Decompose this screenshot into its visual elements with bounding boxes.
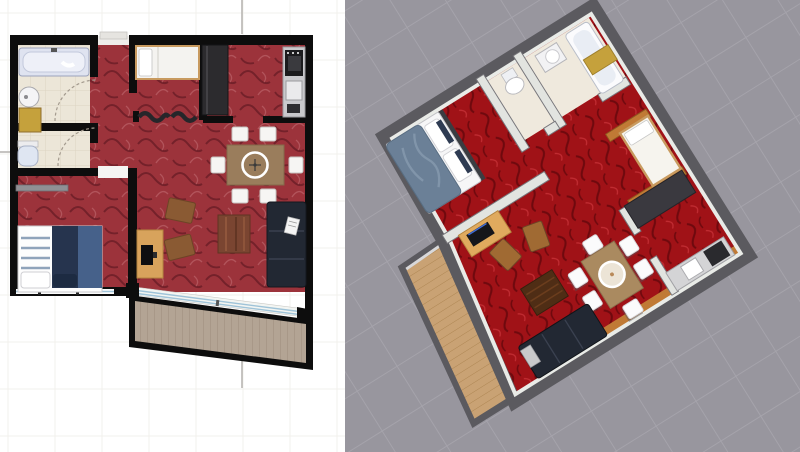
bathtub xyxy=(19,48,89,76)
wall-shelf xyxy=(16,185,68,191)
wardrobe xyxy=(202,45,228,115)
floorplan-viewer xyxy=(0,0,800,452)
sofa xyxy=(267,202,306,287)
plan-2d-canvas xyxy=(0,0,345,452)
single-bed xyxy=(136,46,199,79)
pillow xyxy=(21,272,50,288)
toilet xyxy=(18,141,38,166)
kettle xyxy=(287,104,300,113)
floor-plan-2d-view[interactable] xyxy=(0,0,345,452)
pillow-navy xyxy=(53,274,77,287)
kitchen-sink xyxy=(286,81,302,100)
bathroom-cabinet xyxy=(19,108,41,132)
tv xyxy=(141,245,153,265)
coffee-table xyxy=(218,215,250,253)
washbasin xyxy=(19,87,41,132)
bedroom-door-opening xyxy=(98,166,128,178)
kitchen-counter xyxy=(283,47,305,117)
plan-3d-canvas xyxy=(345,0,800,452)
entrance-door xyxy=(98,32,129,45)
double-bed xyxy=(18,226,102,292)
tv-stand xyxy=(137,230,163,278)
floor-plan-3d-view[interactable] xyxy=(345,0,800,452)
